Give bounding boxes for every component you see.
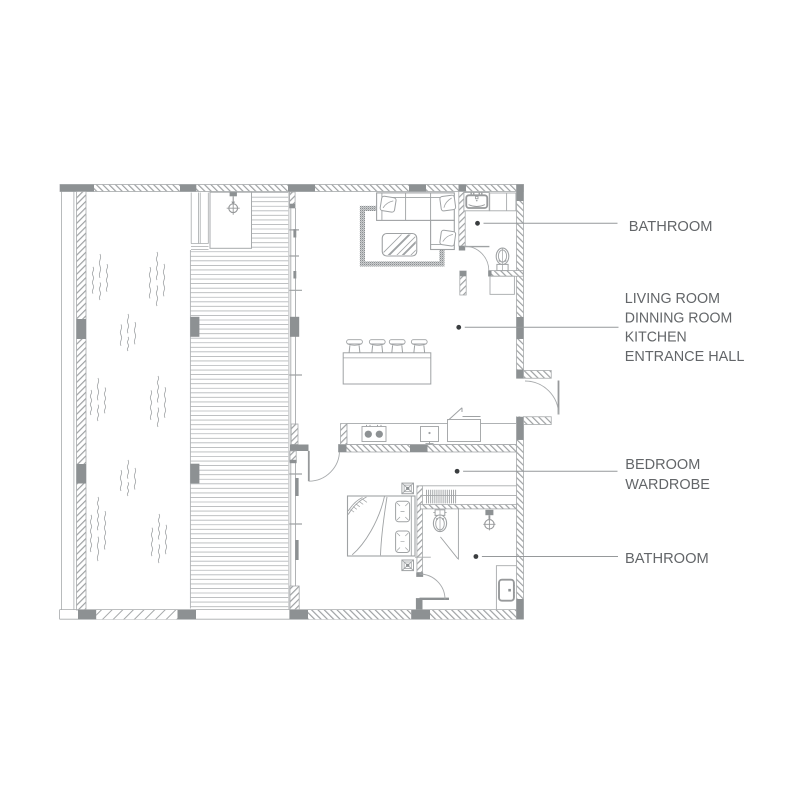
svg-text:WARDROBE: WARDROBE	[625, 477, 710, 493]
svg-text:LIVING ROOM: LIVING ROOM	[625, 291, 720, 307]
svg-text:KITCHEN: KITCHEN	[625, 330, 687, 346]
svg-text:BATHROOM: BATHROOM	[625, 551, 709, 567]
svg-text:BEDROOM: BEDROOM	[625, 457, 700, 473]
svg-text:DINNING ROOM: DINNING ROOM	[625, 310, 733, 326]
svg-text:ENTRANCE HALL: ENTRANCE HALL	[625, 349, 745, 365]
svg-text:BATHROOM: BATHROOM	[629, 219, 713, 235]
